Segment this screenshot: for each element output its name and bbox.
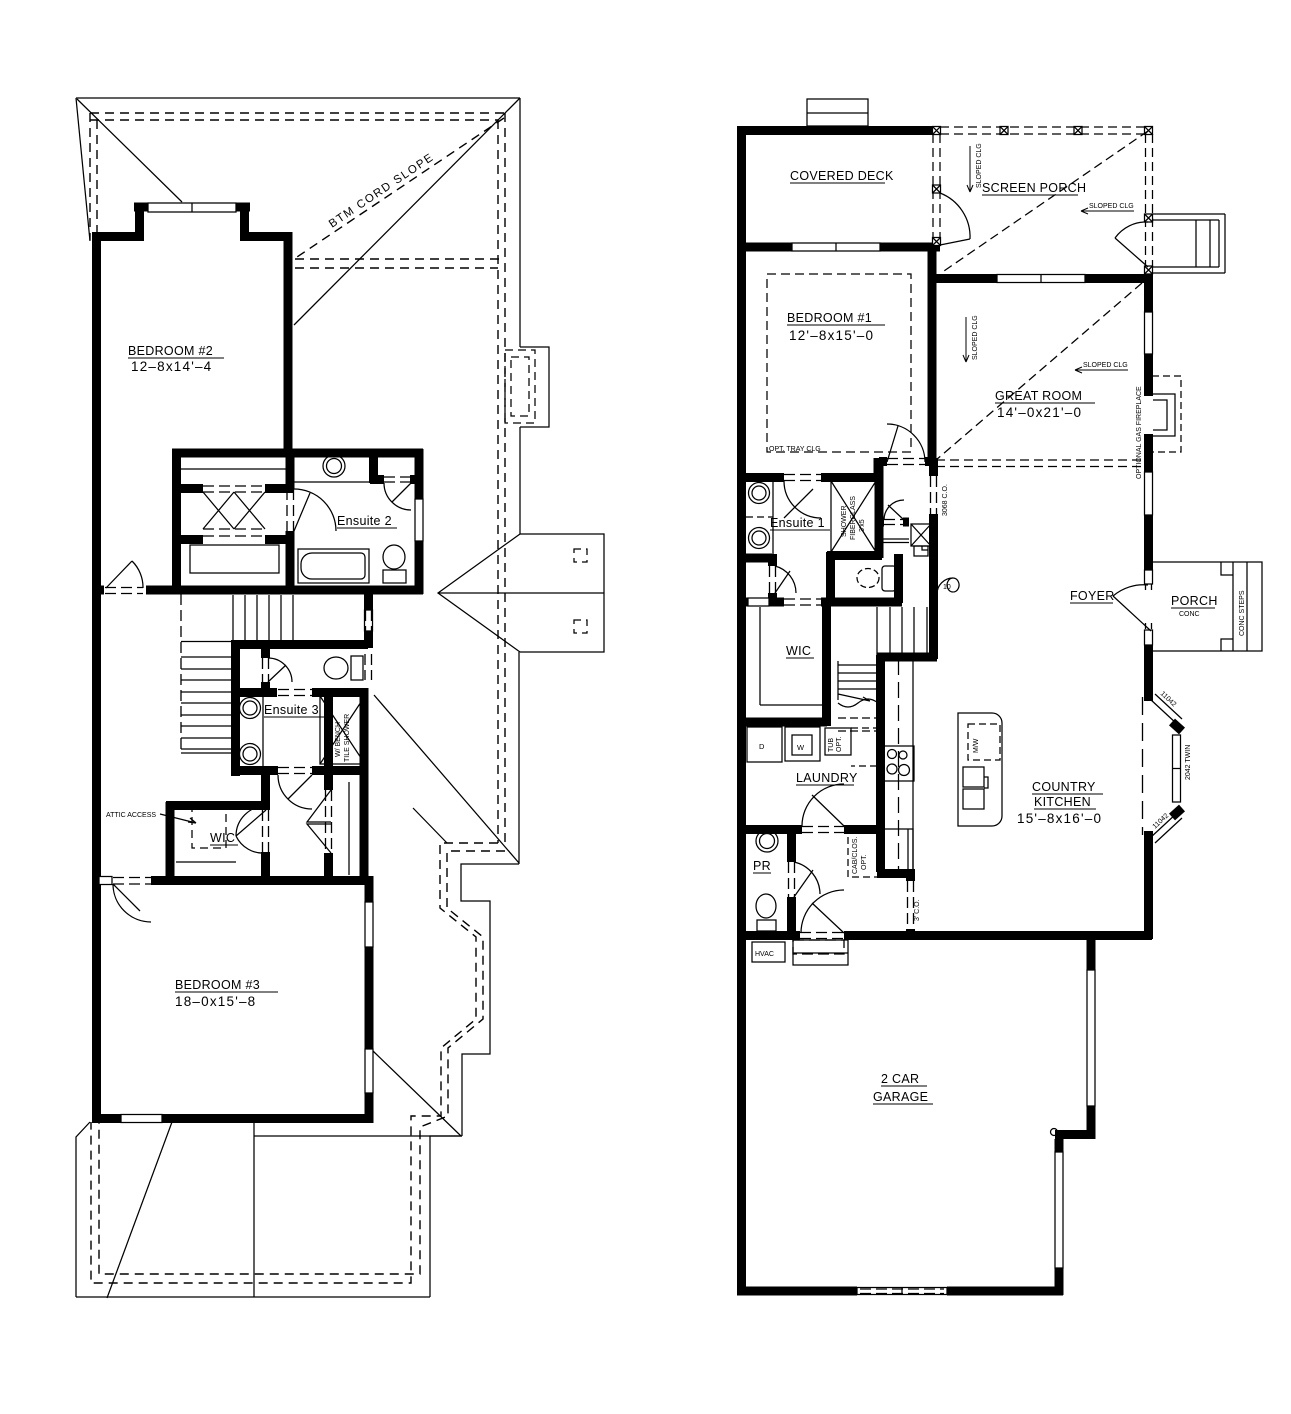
svg-text:SCREEN PORCH: SCREEN PORCH — [982, 181, 1086, 195]
svg-text:CONC STEPS: CONC STEPS — [1239, 590, 1246, 636]
svg-text:OPTIONAL GAS FIREPLACE: OPTIONAL GAS FIREPLACE — [1136, 386, 1143, 479]
svg-text:2 CAR: 2 CAR — [881, 1072, 919, 1086]
svg-text:PR: PR — [753, 859, 771, 873]
svg-text:10: 10 — [943, 584, 951, 591]
svg-text:2042 TWIN: 2042 TWIN — [1185, 745, 1192, 780]
svg-text:WIC: WIC — [786, 644, 811, 658]
svg-text:GARAGE: GARAGE — [873, 1090, 928, 1104]
svg-text:OPT.: OPT. — [836, 736, 843, 752]
svg-text:KITCHEN: KITCHEN — [1034, 795, 1091, 809]
svg-text:SLOPED CLG: SLOPED CLG — [1083, 362, 1128, 369]
svg-text:14'–0x21'–0: 14'–0x21'–0 — [997, 405, 1082, 420]
svg-text:TILE SHOWER: TILE SHOWER — [344, 714, 351, 762]
svg-text:PORCH: PORCH — [1171, 594, 1218, 608]
svg-text:OPT.: OPT. — [861, 854, 868, 870]
svg-text:BEDROOM #3: BEDROOM #3 — [175, 978, 260, 992]
svg-text:W/ BENCH: W/ BENCH — [335, 722, 342, 757]
svg-text:3' C.O.: 3' C.O. — [914, 899, 921, 921]
svg-text:GREAT ROOM: GREAT ROOM — [995, 389, 1082, 403]
svg-text:SLOPED CLG: SLOPED CLG — [976, 143, 983, 188]
svg-text:3'x5: 3'x5 — [859, 519, 866, 532]
svg-text:W: W — [797, 743, 805, 752]
svg-text:TUB: TUB — [828, 738, 835, 752]
svg-text:WIC: WIC — [210, 831, 235, 845]
svg-text:OPT. TRAY CLG: OPT. TRAY CLG — [769, 446, 821, 453]
svg-text:Ensuite 2: Ensuite 2 — [337, 514, 392, 528]
svg-text:15'–8x16'–0: 15'–8x16'–0 — [1017, 811, 1102, 826]
svg-text:SHOWER: SHOWER — [841, 506, 848, 538]
svg-text:D: D — [759, 742, 765, 751]
svg-text:BEDROOM #1: BEDROOM #1 — [787, 311, 872, 325]
svg-text:FIBERGLASS: FIBERGLASS — [850, 496, 857, 540]
svg-text:12–8x14'–4: 12–8x14'–4 — [131, 359, 212, 374]
svg-text:HVAC: HVAC — [755, 951, 774, 958]
svg-text:CAB/CLOS.: CAB/CLOS. — [852, 837, 859, 874]
svg-text:12'–8x15'–0: 12'–8x15'–0 — [789, 328, 874, 343]
svg-text:SLOPED CLG: SLOPED CLG — [1089, 203, 1134, 210]
svg-text:COUNTRY: COUNTRY — [1032, 780, 1096, 794]
svg-text:LAUNDRY: LAUNDRY — [796, 771, 858, 785]
svg-text:COVERED DECK: COVERED DECK — [790, 169, 894, 183]
svg-text:ATTIC ACCESS: ATTIC ACCESS — [106, 812, 156, 819]
svg-text:3068 C.O.: 3068 C.O. — [942, 484, 949, 516]
svg-text:SLOPED CLG: SLOPED CLG — [972, 315, 979, 360]
svg-text:18–0x15'–8: 18–0x15'–8 — [175, 994, 256, 1009]
svg-text:Ensuite 1: Ensuite 1 — [770, 516, 825, 530]
svg-text:M/W: M/W — [973, 738, 980, 753]
svg-text:FOYER: FOYER — [1070, 589, 1115, 603]
svg-text:BEDROOM #2: BEDROOM #2 — [128, 344, 213, 358]
svg-text:Ensuite 3: Ensuite 3 — [264, 703, 319, 717]
svg-text:CONC: CONC — [1179, 611, 1200, 618]
